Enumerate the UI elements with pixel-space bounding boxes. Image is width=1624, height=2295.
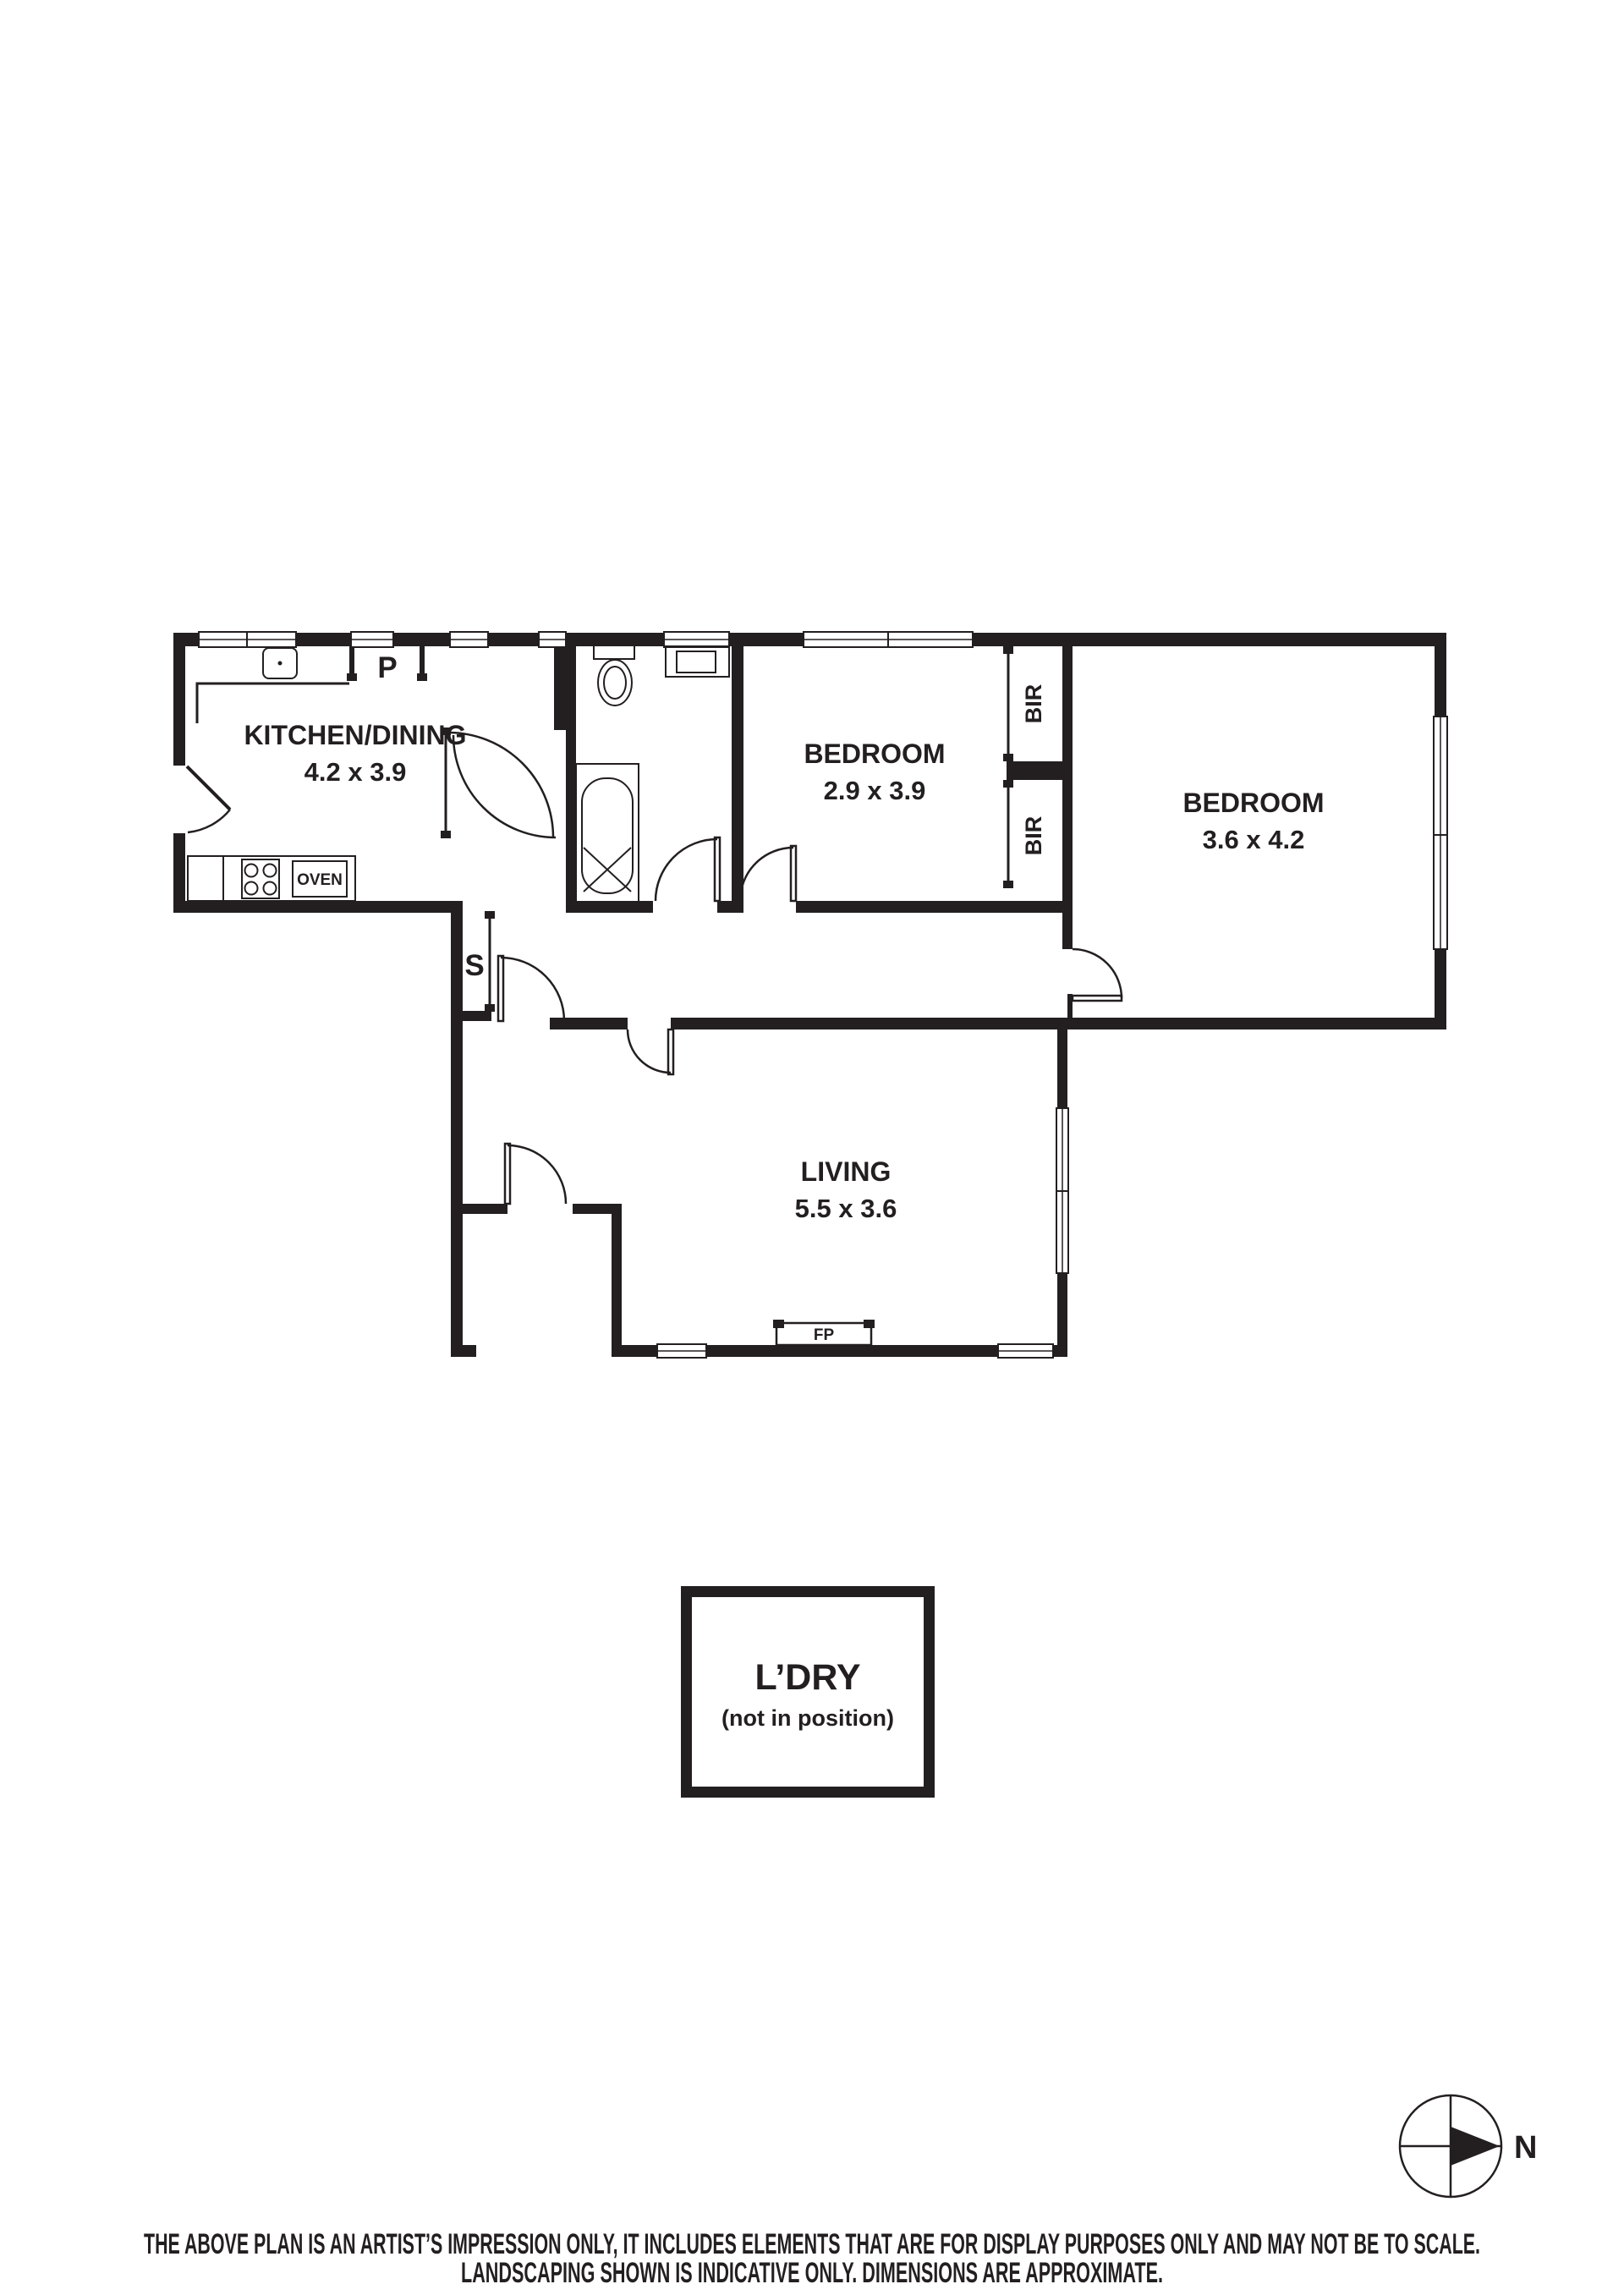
bir-top-label: BIR: [1021, 684, 1046, 724]
doors: [187, 733, 1122, 1204]
sink-icon: [263, 648, 297, 678]
kitchen-dining-dims: 4.2 x 3.9: [304, 757, 407, 787]
storage-label: S: [464, 949, 484, 982]
disclaimer-line1: THE ABOVE PLAN IS AN ARTIST’S IMPRESSION…: [144, 2228, 1480, 2260]
compass-icon: [1400, 2095, 1501, 2197]
compass: N: [1400, 2095, 1537, 2197]
floor-plan-canvas: KITCHEN/DINING 4.2 x 3.9 BEDROOM 2.9 x 3…: [0, 0, 1624, 2295]
disclaimer: THE ABOVE PLAN IS AN ARTIST’S IMPRESSION…: [144, 2228, 1480, 2289]
oven-label: OVEN: [297, 871, 343, 889]
bir-bottom-label: BIR: [1021, 816, 1046, 856]
fireplace-label: FP: [814, 1326, 835, 1344]
bedroom1-dims: 2.9 x 3.9: [824, 776, 926, 805]
bathtub-icon: [576, 764, 639, 903]
laundry-box: L’DRY (not in position): [687, 1592, 930, 1793]
laundry-title: L’DRY: [754, 1657, 860, 1698]
laundry-note: (not in position): [721, 1705, 894, 1731]
north-label: N: [1514, 2130, 1537, 2166]
bedroom2-dims: 3.6 x 4.2: [1203, 825, 1305, 854]
living-label: LIVING: [801, 1156, 892, 1187]
bedroom1-label: BEDROOM: [804, 738, 945, 769]
kitchen-dining-label: KITCHEN/DINING: [244, 720, 466, 750]
room-labels: KITCHEN/DINING 4.2 x 3.9 BEDROOM 2.9 x 3…: [244, 720, 1324, 1223]
pantry-label: P: [377, 651, 397, 684]
disclaimer-line2: LANDSCAPING SHOWN IS INDICATIVE ONLY. DI…: [461, 2257, 1163, 2289]
living-dims: 5.5 x 3.6: [795, 1194, 897, 1223]
bedroom2-label: BEDROOM: [1182, 788, 1324, 818]
cooktop-icon: [242, 859, 279, 898]
vanity-icon: [666, 646, 729, 677]
toilet-icon: [594, 645, 634, 706]
bathroom-fixtures: [576, 645, 729, 903]
floor-plan-page: KITCHEN/DINING 4.2 x 3.9 BEDROOM 2.9 x 3…: [0, 0, 1624, 2295]
